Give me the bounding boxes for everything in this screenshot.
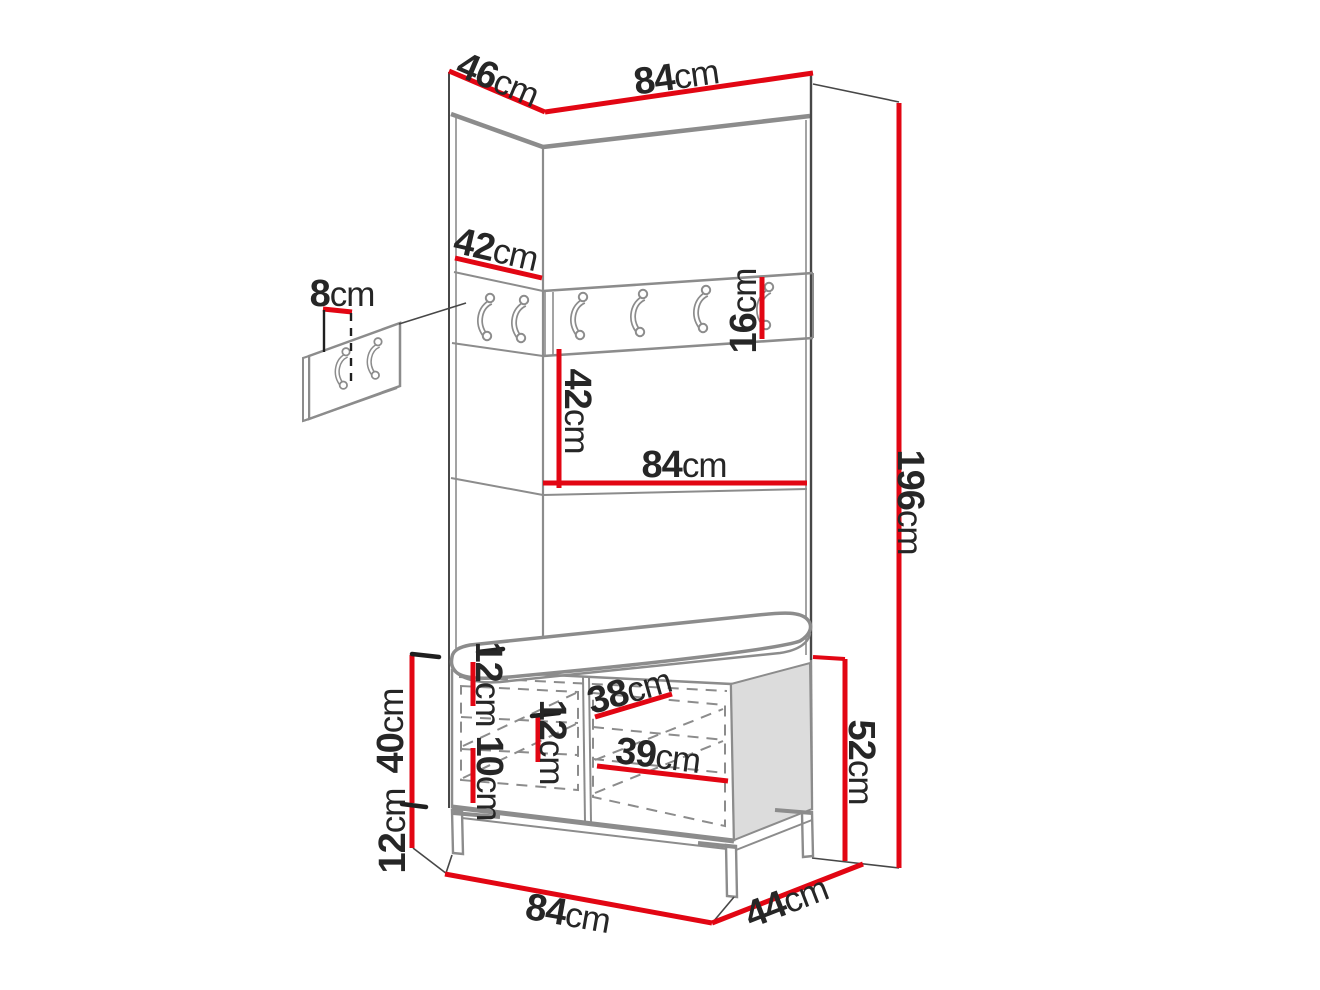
label-42cm-upper: 42cm [450,220,542,280]
leg-front-left [452,810,463,854]
label-12cm-plinth: 12cm [372,789,414,874]
wing-seam-shelf [451,478,543,495]
wing-seam-rail-bottom [452,343,543,356]
label-12cm-bench-top: 12cm [467,642,509,727]
coat-hook [514,296,528,342]
coat-hook [480,294,494,340]
back-top-edge [543,116,810,147]
label-84cm-middle: 84cm [642,444,727,486]
label-42cm-middle: 42cm [556,369,598,454]
hook-panel-side-edge [303,356,309,421]
rail-bottom-edge [543,338,813,356]
label-46cm: 46cm [450,44,545,116]
coat-hook [696,286,710,332]
label-84cm-top: 84cm [631,50,721,103]
label-84cm-bottom: 84cm [522,886,613,942]
diagram-canvas: 46cm 84cm 42cm 8cm 16cm 42cm 84cm 196cm … [0,0,1320,990]
label-196cm: 196cm [889,449,931,554]
label-10cm: 10cm [468,736,510,821]
furniture-dimension-diagram: 46cm 84cm 42cm 8cm 16cm 42cm 84cm 196cm … [0,0,1320,990]
dim-tick-40cm-top [412,654,439,657]
coat-hook [573,293,587,339]
label-12cm-bench-mid: 12cm [531,700,573,785]
label-40cm: 40cm [370,689,412,774]
shelf-seam [543,489,807,495]
wall-hook-panel [303,303,466,421]
coat-hook [633,290,647,336]
hook-panel-face [309,323,400,419]
label-16cm: 16cm [723,269,765,354]
leg-rear-right [802,812,813,857]
leg-front-right [726,845,737,897]
label-8cm: 8cm [310,273,375,315]
dim-tick-52cm [813,657,845,659]
wing-top-edge [451,114,543,147]
label-44cm: 44cm [739,867,833,937]
label-52cm: 52cm [840,720,882,805]
